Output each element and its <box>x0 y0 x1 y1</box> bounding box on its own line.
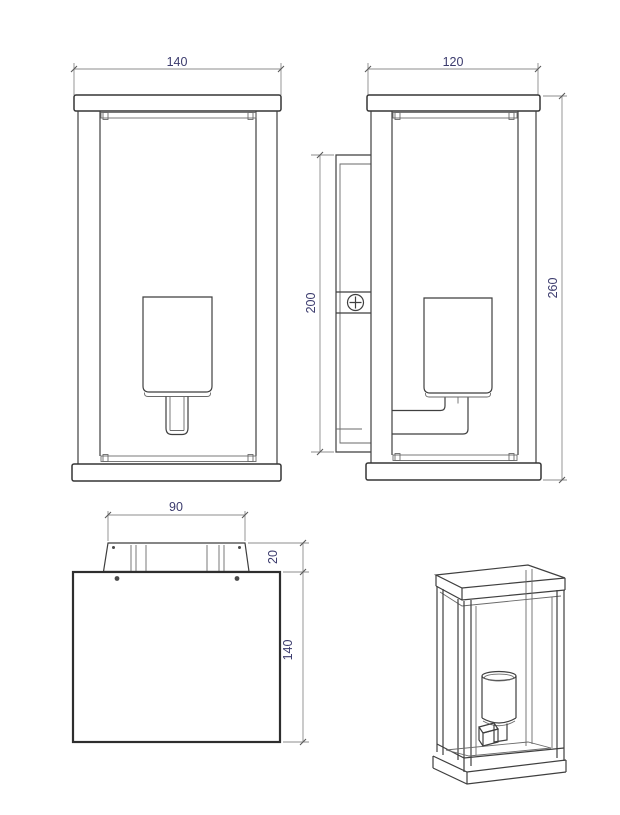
dim-side-width: 120 <box>365 55 541 95</box>
dim-label-bracket-depth: 20 <box>266 550 280 564</box>
top-body <box>73 572 280 742</box>
front-view: 140 <box>71 55 284 481</box>
persp-top-cap <box>436 565 565 606</box>
dim-label-bracket-width: 90 <box>169 500 183 514</box>
side-bottom-sill <box>393 454 517 461</box>
persp-bottom-base <box>433 756 566 784</box>
dim-top-bracket-width: 90 <box>105 500 248 541</box>
dim-label-body-depth: 140 <box>281 640 295 661</box>
dim-top-depths: 20 140 <box>248 540 309 745</box>
persp-cylinder-shade <box>482 672 516 726</box>
persp-socket-bracket <box>479 723 507 746</box>
front-top-sill <box>101 113 256 120</box>
top-screw-dot-left <box>115 576 120 581</box>
dim-label-side-width: 120 <box>443 55 464 69</box>
front-lamp-shade <box>143 297 212 397</box>
dim-front-width: 140 <box>71 55 284 95</box>
side-lamp-shade <box>424 298 492 397</box>
front-bottom-sill <box>101 455 256 462</box>
side-top-cap <box>367 95 540 111</box>
drawing-sheet: 140 <box>0 0 620 815</box>
side-view: 120 260 200 <box>304 55 567 483</box>
dim-label-front-width: 140 <box>167 55 188 69</box>
side-top-sill <box>393 113 517 120</box>
top-view: 90 20 140 <box>73 500 309 745</box>
dim-side-height: 260 <box>543 93 567 483</box>
front-socket <box>166 397 188 435</box>
top-screw-dot-right <box>235 576 240 581</box>
screw-icon <box>348 295 364 311</box>
side-bottom-base <box>366 463 541 480</box>
top-mounting-bracket <box>104 543 250 572</box>
technical-drawing: 140 <box>0 0 620 815</box>
dim-label-side-height: 260 <box>546 278 560 299</box>
front-frame <box>78 111 277 464</box>
dim-backplate-height: 200 <box>304 152 334 455</box>
dim-label-backplate-height: 200 <box>304 293 318 314</box>
front-top-cap <box>74 95 281 111</box>
persp-floor <box>446 742 551 756</box>
side-socket-arm <box>392 397 468 434</box>
perspective-view <box>433 565 566 784</box>
front-bottom-base <box>72 464 281 481</box>
wall-plate <box>336 155 371 452</box>
